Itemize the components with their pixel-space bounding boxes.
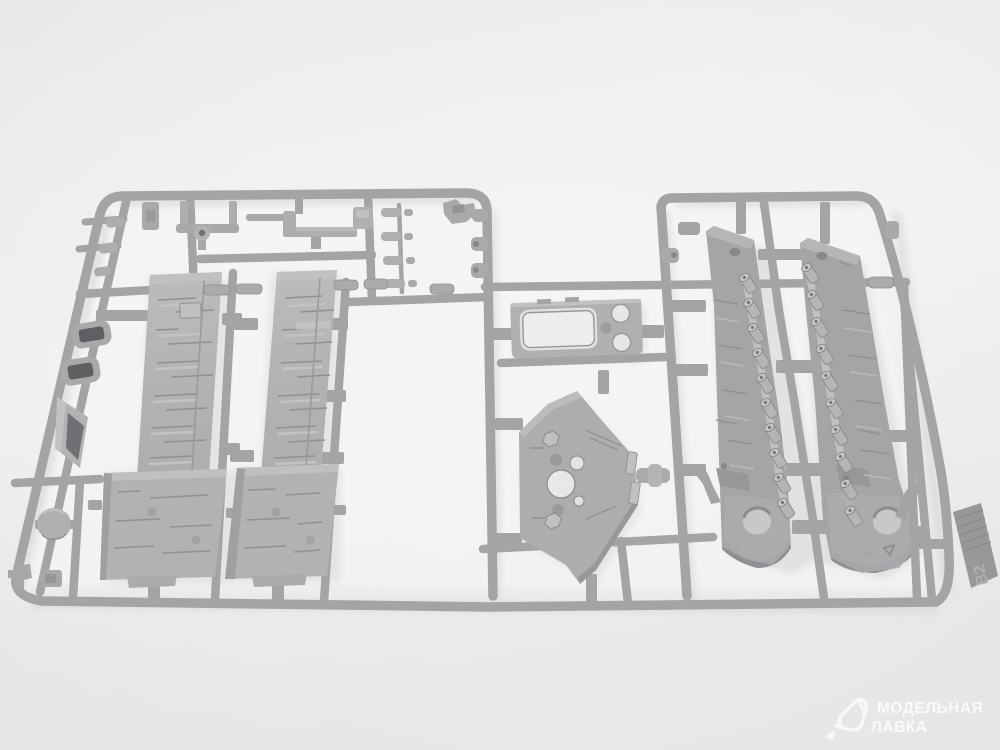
svg-text:ЛАВКА: ЛАВКА <box>871 719 927 736</box>
svg-text:МОДЕЛЬНАЯ: МОДЕЛЬНАЯ <box>877 700 983 717</box>
